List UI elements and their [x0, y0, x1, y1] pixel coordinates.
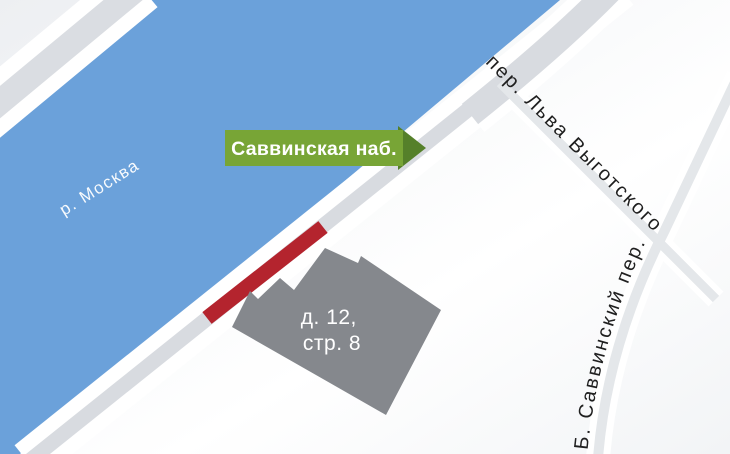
building-label-line1: д. 12,: [301, 306, 357, 329]
street-badge: Саввинская наб.: [225, 126, 426, 170]
badge-label: Саввинская наб.: [231, 138, 397, 160]
building-label-line2: стр. 8: [303, 332, 361, 355]
map-canvas[interactable]: д. 12, стр. 8 р. Москва пер. Льва Выготс…: [0, 0, 730, 454]
map-svg: д. 12, стр. 8 р. Москва пер. Льва Выготс…: [0, 0, 730, 454]
